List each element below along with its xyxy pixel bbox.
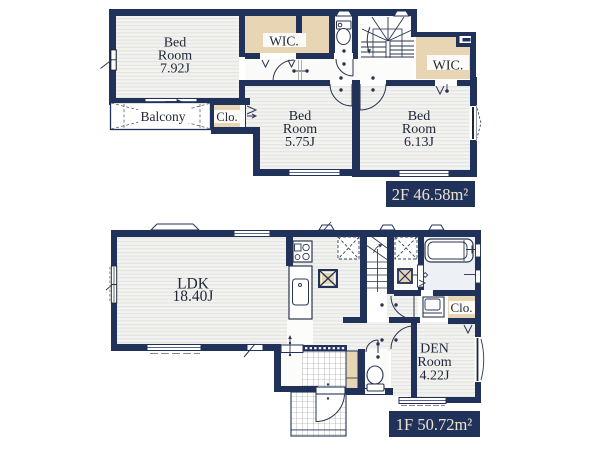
svg-text:6.13J: 6.13J: [404, 135, 435, 150]
svg-text:WIC.: WIC.: [269, 34, 299, 49]
svg-text:WIC.: WIC.: [433, 59, 464, 74]
svg-text:4.22J: 4.22J: [420, 369, 451, 384]
svg-text:Clo.: Clo.: [216, 110, 237, 124]
svg-text:7.92J: 7.92J: [160, 62, 191, 77]
svg-text:Balcony: Balcony: [141, 109, 186, 124]
svg-text:5.75J: 5.75J: [285, 135, 316, 150]
svg-text:1F 50.72m²: 1F 50.72m²: [396, 415, 473, 434]
svg-text:2F 46.58m²: 2F 46.58m²: [392, 185, 469, 204]
svg-text:Clo.: Clo.: [450, 300, 472, 315]
svg-text:18.40J: 18.40J: [173, 288, 214, 305]
